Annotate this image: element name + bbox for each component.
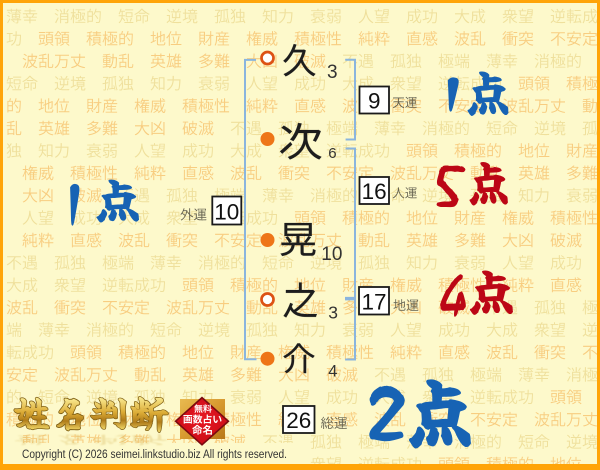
svg-text:Copyright (C) 2026 seimei.link: Copyright (C) 2026 seimei.linkstudio.biz… [22,449,287,461]
svg-text:10: 10 [321,244,342,265]
svg-text:16: 16 [362,179,387,204]
svg-text:17: 17 [361,290,386,315]
svg-text:26: 26 [286,408,311,433]
svg-text:9: 9 [368,89,381,114]
svg-text:10: 10 [214,200,239,225]
svg-text:4: 4 [328,363,337,381]
svg-text:3: 3 [327,62,338,83]
svg-text:6: 6 [328,145,336,162]
svg-text:3: 3 [328,303,338,323]
